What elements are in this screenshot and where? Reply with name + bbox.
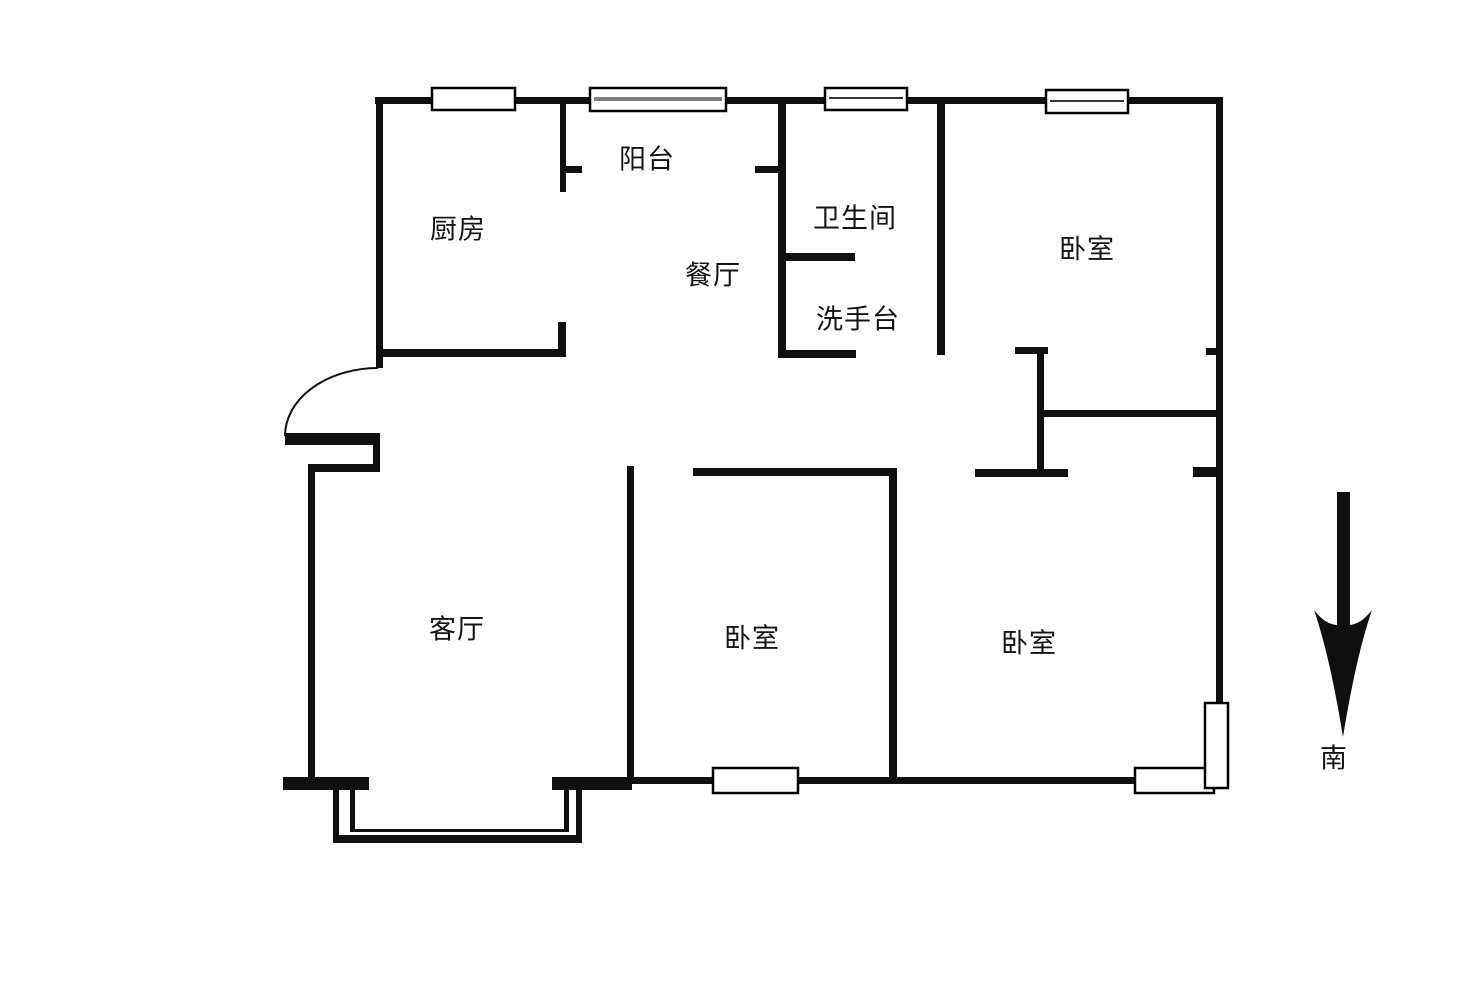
bedroom-se-window-east (1205, 703, 1228, 788)
wall-bedroom-mid-north (693, 468, 896, 476)
bay-window-bottom-outer (333, 835, 582, 843)
wall-washstand-divider (786, 253, 855, 261)
wall-bathroom-east (937, 97, 945, 355)
entry-jog-horizontal (308, 464, 380, 472)
room-label-dining: 餐厅 (685, 254, 741, 293)
wall-washstand-south (786, 350, 856, 358)
balcony-window-glass-line (594, 97, 722, 101)
bay-window-left-outer (333, 788, 339, 843)
room-label-balcony: 阳台 (619, 138, 675, 177)
wall-kitchen-south-tick (558, 322, 566, 349)
floor-plan-canvas: 厨房 阳台 餐厅 卫生间 洗手台 卧室 客厅 卧室 卧室 南 (0, 0, 1478, 1000)
bathroom-window-glass-line (829, 97, 903, 99)
room-label-bedroom-south-middle: 卧室 (724, 617, 780, 656)
wall-bedroom-se-north-left (975, 469, 1068, 477)
bay-window-bottom-inner (350, 829, 569, 832)
room-label-bathroom: 卫生间 (813, 197, 897, 236)
entry-door-leaf (285, 433, 380, 445)
room-label-bedroom-south-east: 卧室 (1001, 622, 1057, 661)
wall-bedroom-mid-east (889, 468, 897, 784)
bedroom-mid-window (713, 768, 798, 793)
wall-east (1216, 97, 1223, 789)
room-label-bedroom-north: 卧室 (1059, 228, 1115, 267)
room-label-living-room: 客厅 (429, 608, 485, 647)
wall-kitchen-south (376, 349, 566, 357)
wall-bathroom-west (778, 97, 786, 358)
wall-closet-shelf (1040, 410, 1216, 417)
bay-window-right-inner (564, 788, 569, 832)
wall-bedroom-se-north-right (1193, 467, 1216, 477)
wall-west-kitchen (376, 97, 383, 368)
room-label-kitchen: 厨房 (430, 208, 486, 247)
wall-west-living (308, 464, 315, 784)
south-arrow-head (1314, 610, 1372, 737)
bedroom-se-window-south (1135, 768, 1214, 793)
wall-south-left-thick (283, 777, 369, 790)
bay-window-right-outer (576, 788, 582, 843)
floor-plan-drawing (0, 0, 1478, 1000)
bedroom-north-window-glass-line (1050, 100, 1124, 102)
walls (283, 97, 1223, 843)
wall-kitchen-divider-tick (560, 166, 582, 173)
room-label-washstand: 洗手台 (816, 298, 900, 337)
entry-door-arc (285, 368, 378, 436)
compass-south-label: 南 (1320, 737, 1348, 776)
wall-east-tick (1206, 348, 1216, 355)
south-arrow-shaft (1337, 492, 1350, 628)
wall-kitchen-balcony-divider (560, 97, 566, 192)
kitchen-window (432, 88, 515, 110)
bay-window-left-inner (350, 788, 355, 832)
windows (432, 88, 1228, 793)
wall-balcony-stub (755, 166, 782, 173)
south-arrow-icon (1314, 492, 1372, 737)
wall-living-bedroom-divider (627, 466, 634, 784)
